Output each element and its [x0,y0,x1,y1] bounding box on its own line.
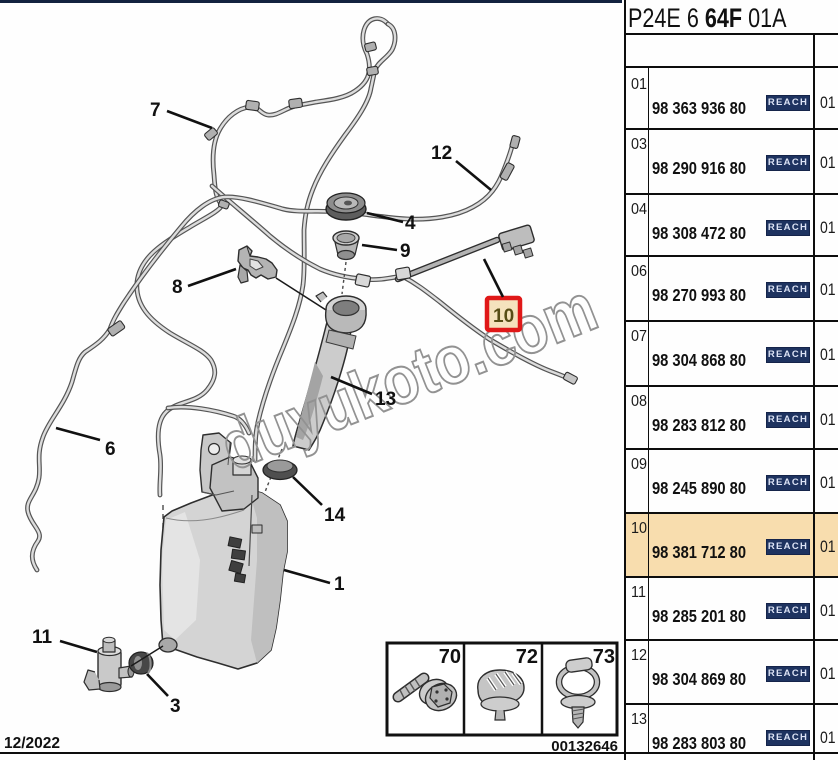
svg-text:72: 72 [516,646,538,668]
svg-text:73: 73 [593,646,615,668]
svg-text:4: 4 [405,213,416,234]
svg-text:11: 11 [32,627,53,648]
svg-text:10: 10 [493,306,514,327]
svg-text:6: 6 [105,439,116,460]
svg-text:12: 12 [431,143,452,164]
svg-text:13: 13 [375,389,396,410]
svg-text:14: 14 [324,505,346,526]
svg-text:3: 3 [170,696,181,717]
svg-text:9: 9 [400,241,411,262]
svg-text:1: 1 [334,574,345,595]
svg-text:70: 70 [439,646,461,668]
svg-text:8: 8 [172,277,183,298]
svg-text:7: 7 [150,100,161,121]
